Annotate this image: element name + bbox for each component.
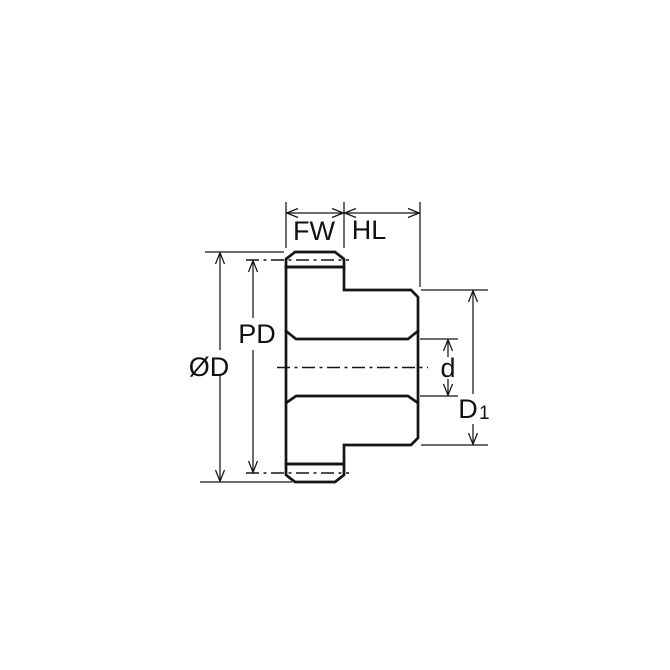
label-pitch-diameter: PD xyxy=(238,319,276,349)
centerlines xyxy=(246,260,428,473)
dimension-fw-hl: FW HL xyxy=(286,202,420,287)
dimension-pd: PD xyxy=(238,261,276,473)
label-hub-length: HL xyxy=(352,215,387,245)
dimension-od: ØD xyxy=(189,252,292,482)
label-hub-diameter-subscript: 1 xyxy=(479,403,490,424)
label-bore-diameter: d xyxy=(440,353,455,383)
label-outside-diameter: ØD xyxy=(189,352,230,382)
dimension-d: d xyxy=(420,339,458,396)
label-hub-diameter: D xyxy=(458,394,478,424)
gear-body-lower xyxy=(286,396,418,464)
label-face-width: FW xyxy=(293,216,335,246)
gear-body-upper xyxy=(286,267,418,339)
drawing-surface: FW HL ØD PD d xyxy=(0,0,670,670)
gear-dimension-drawing: FW HL ØD PD d xyxy=(0,0,670,670)
